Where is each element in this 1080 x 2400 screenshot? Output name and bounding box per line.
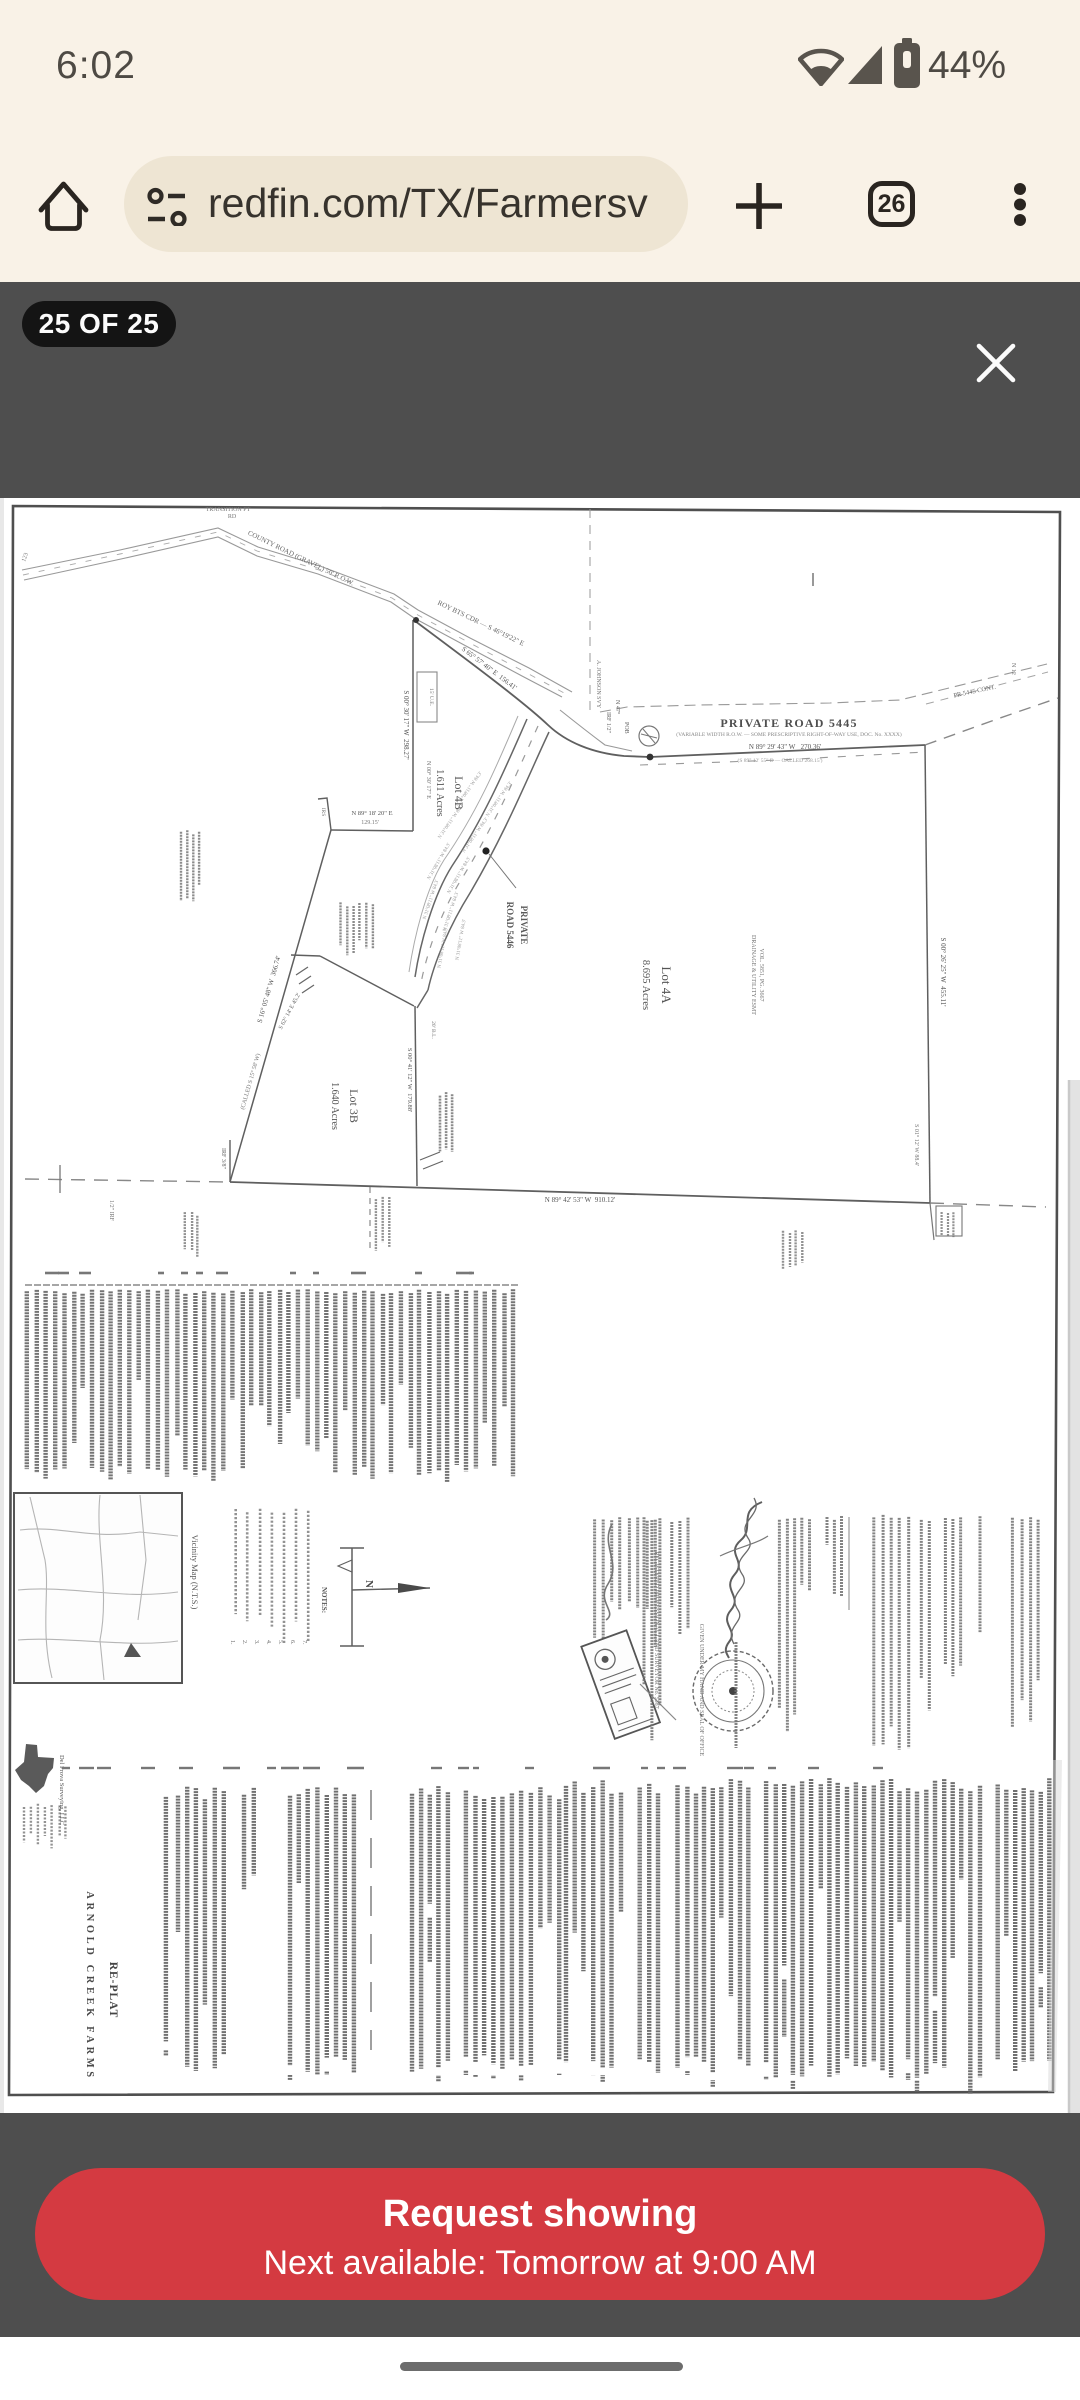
svg-text:(S 89° 12' 55" E — CALLED 26: (S 89° 12' 55" E — CALLED 268.15') bbox=[738, 757, 823, 764]
svg-text:N: N bbox=[363, 1580, 375, 1588]
svg-text:TRANSITION PT: TRANSITION PT bbox=[206, 507, 251, 513]
svg-text:PRIVATE: PRIVATE bbox=[519, 906, 529, 945]
svg-text:NOTES:: NOTES: bbox=[320, 1587, 328, 1613]
svg-text:PRIVATE ROAD 5445: PRIVATE ROAD 5445 bbox=[720, 716, 857, 730]
svg-text:IRF 1/2": IRF 1/2" bbox=[605, 712, 611, 734]
svg-text:1/2" IRF: 1/2" IRF bbox=[108, 1200, 114, 1222]
svg-text:15' U.E.: 15' U.E. bbox=[428, 688, 434, 707]
svg-text:Del Prova Surveying, LLC: Del Prova Surveying, LLC bbox=[58, 1755, 65, 1825]
svg-text:1.: 1. bbox=[229, 1640, 235, 1645]
svg-text:S 00° 41' 12" W 179.88': S 00° 41' 12" W 179.88' bbox=[406, 1048, 413, 1112]
svg-text:IRS: IRS bbox=[320, 808, 326, 817]
svg-text:1.611 Acres: 1.611 Acres bbox=[434, 769, 445, 817]
svg-text:N 89° 18' 20" E: N 89° 18' 20" E bbox=[351, 810, 392, 817]
svg-text:S 00° 30' 17" W 298.27': S 00° 30' 17" W 298.27' bbox=[402, 690, 410, 759]
svg-text:RD: RD bbox=[228, 514, 237, 520]
svg-text:Vicinity Map (N.T.S.): Vicinity Map (N.T.S.) bbox=[190, 1535, 200, 1610]
svg-text:A. JOHNSON SVY: A. JOHNSON SVY bbox=[595, 660, 601, 709]
svg-text:N 31°08'11" W 84.3': N 31°08'11" W 84.3' bbox=[427, 843, 452, 881]
svg-text:8.695 Acres: 8.695 Acres bbox=[640, 960, 651, 1010]
svg-text:GIVEN UNDER MY HAND AND SEAL O: GIVEN UNDER MY HAND AND SEAL OF OFFICE bbox=[698, 1624, 704, 1757]
svg-text:N 47°: N 47° bbox=[614, 700, 621, 715]
svg-text:ROY BTS CDR — S 46°19'22" E: ROY BTS CDR — S 46°19'22" E bbox=[436, 599, 525, 648]
svg-text:5.: 5. bbox=[277, 1640, 283, 1645]
svg-text:3.: 3. bbox=[253, 1640, 259, 1645]
svg-text:Lot 4A: Lot 4A bbox=[659, 966, 674, 1004]
svg-text:IRF 3/8": IRF 3/8" bbox=[220, 1148, 226, 1170]
svg-text:123: 123 bbox=[21, 552, 30, 563]
svg-text:4.: 4. bbox=[265, 1640, 271, 1645]
svg-text:REGISTERED PROFESSIONAL LAND S: REGISTERED PROFESSIONAL LAND SURVEYOR No… bbox=[653, 1551, 659, 1708]
svg-text:N 00° 30' 17" E: N 00° 30' 17" E bbox=[425, 761, 432, 799]
svg-text:20' B.L.: 20' B.L. bbox=[430, 1021, 436, 1039]
svg-text:S 00° 26' 25" W 455.11': S 00° 26' 25" W 455.11' bbox=[939, 937, 947, 1006]
svg-text:N 89° 42' 53" W 910.12': N 89° 42' 53" W 910.12' bbox=[545, 1196, 615, 1204]
svg-text:N 31°08'11" W 84.3': N 31°08'11" W 84.3' bbox=[437, 927, 449, 969]
svg-text:VOL. 5851, PG. 3667: VOL. 5851, PG. 3667 bbox=[758, 948, 764, 1001]
svg-text:S 65° 57' 40" E 156.41': S 65° 57' 40" E 156.41' bbox=[460, 645, 518, 692]
svg-text:ROAD 5446: ROAD 5446 bbox=[505, 902, 515, 949]
svg-text:(VARIABLE WIDTH R.O.W. — SOME: (VARIABLE WIDTH R.O.W. — SOME PRESCRIPTI… bbox=[676, 731, 902, 738]
svg-text:N 89° 29' 43" W 270.36': N 89° 29' 43" W 270.36' bbox=[749, 743, 821, 751]
svg-text:6.: 6. bbox=[289, 1640, 295, 1645]
svg-text:2.: 2. bbox=[241, 1640, 247, 1645]
svg-text:7.: 7. bbox=[301, 1640, 307, 1645]
svg-text:S 01° 12' W 88.4': S 01° 12' W 88.4' bbox=[913, 1124, 920, 1166]
svg-text:129.15': 129.15' bbox=[361, 820, 379, 826]
svg-text:S 62° 14' E 45.2': S 62° 14' E 45.2' bbox=[277, 992, 302, 1031]
svg-text:1.640 Acres: 1.640 Acres bbox=[329, 1082, 340, 1130]
svg-text:POB: POB bbox=[623, 722, 629, 734]
svg-text:N 31°08'11" W 84.3': N 31°08'11" W 84.3' bbox=[455, 919, 467, 961]
svg-text:N 12: N 12 bbox=[1010, 663, 1016, 675]
svg-text:RE-PLAT: RE-PLAT bbox=[107, 1962, 119, 2019]
svg-text:DRAINAGE & UTILITY ESMT: DRAINAGE & UTILITY ESMT bbox=[750, 935, 756, 1015]
svg-text:N 31°08'11" W 84.3': N 31°08'11" W 84.3' bbox=[447, 857, 472, 895]
svg-text:ARNOLD CREEK FARMS: ARNOLD CREEK FARMS bbox=[84, 1891, 95, 2080]
svg-text:Lot 3B: Lot 3B bbox=[347, 1089, 361, 1123]
